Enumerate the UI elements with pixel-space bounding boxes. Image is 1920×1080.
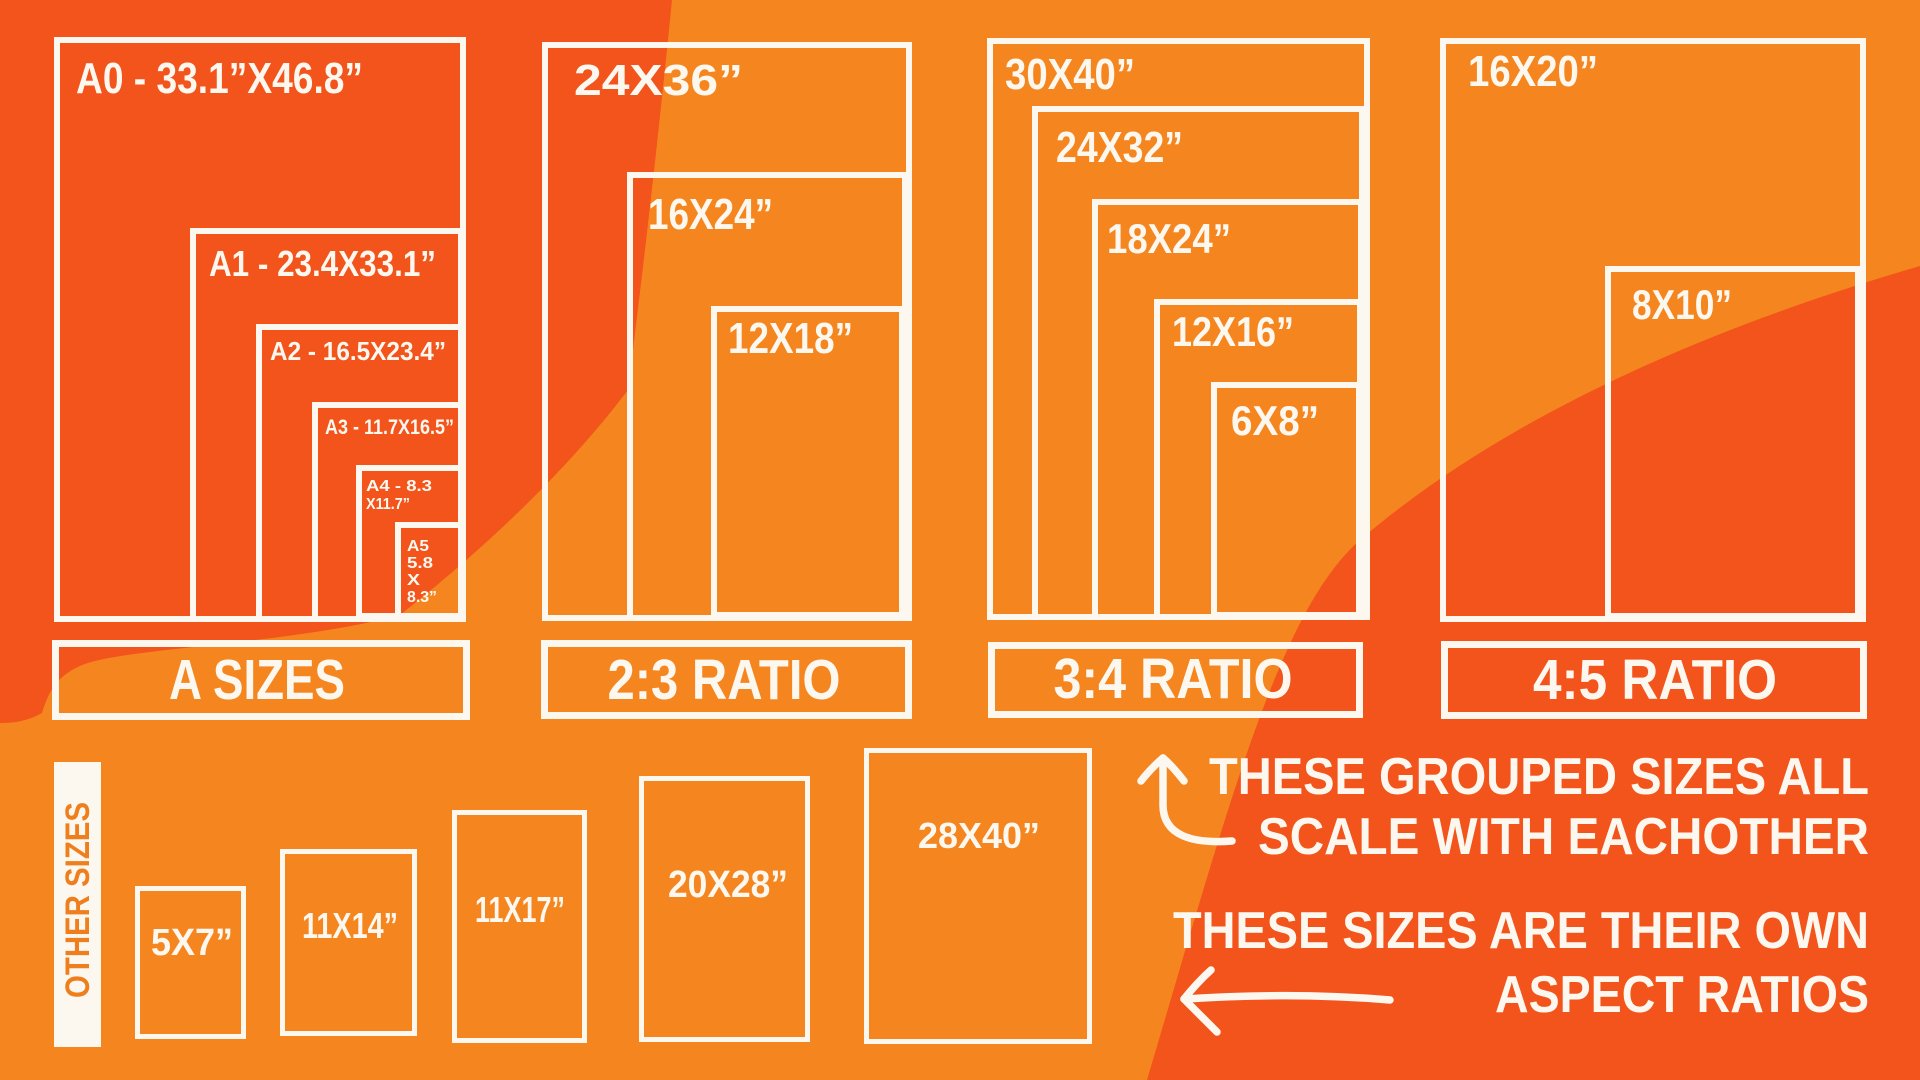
svg-text:8X10”: 8X10” (1632, 281, 1732, 328)
svg-text:2:3 RATIO: 2:3 RATIO (608, 648, 841, 712)
svg-text:A3 - 11.7X16.5”: A3 - 11.7X16.5” (325, 416, 454, 439)
svg-text:5X7”: 5X7” (151, 922, 233, 964)
svg-text:24X32”: 24X32” (1056, 123, 1183, 172)
svg-text:A5: A5 (407, 538, 429, 555)
svg-text:12X18”: 12X18” (728, 314, 853, 363)
svg-text:24X36”: 24X36” (574, 56, 743, 105)
svg-text:THESE SIZES ARE THEIR OWN: THESE SIZES ARE THEIR OWN (1173, 902, 1869, 960)
svg-text:28X40”: 28X40” (918, 815, 1040, 856)
svg-text:20X28”: 20X28” (668, 864, 788, 906)
svg-text:A4 - 8.3: A4 - 8.3 (366, 478, 432, 495)
svg-text:6X8”: 6X8” (1231, 397, 1319, 444)
svg-text:X: X (407, 572, 420, 589)
svg-text:4:5 RATIO: 4:5 RATIO (1533, 648, 1777, 712)
svg-text:X11.7”: X11.7” (366, 496, 410, 513)
svg-text:3:4 RATIO: 3:4 RATIO (1054, 647, 1293, 711)
svg-text:18X24”: 18X24” (1107, 215, 1231, 262)
svg-text:SCALE WITH EACHOTHER: SCALE WITH EACHOTHER (1258, 808, 1869, 866)
svg-text:8.3”: 8.3” (407, 589, 437, 606)
svg-text:30X40”: 30X40” (1005, 50, 1135, 99)
svg-text:A SIZES: A SIZES (169, 648, 345, 712)
svg-text:THESE GROUPED SIZES ALL: THESE GROUPED SIZES ALL (1209, 748, 1869, 806)
svg-text:A2 - 16.5X23.4”: A2 - 16.5X23.4” (270, 336, 446, 366)
svg-text:A0 - 33.1”X46.8”: A0 - 33.1”X46.8” (76, 54, 363, 103)
svg-text:OTHER SIZES: OTHER SIZES (59, 802, 97, 998)
svg-text:ASPECT RATIOS: ASPECT RATIOS (1495, 966, 1869, 1024)
svg-text:16X24”: 16X24” (648, 190, 773, 239)
svg-text:12X16”: 12X16” (1172, 308, 1294, 355)
svg-text:11X14”: 11X14” (302, 905, 398, 946)
svg-text:5.8: 5.8 (407, 555, 433, 572)
svg-text:16X20”: 16X20” (1468, 47, 1598, 96)
svg-text:11X17”: 11X17” (475, 889, 565, 930)
svg-text:A1 - 23.4X33.1”: A1 - 23.4X33.1” (209, 243, 436, 284)
